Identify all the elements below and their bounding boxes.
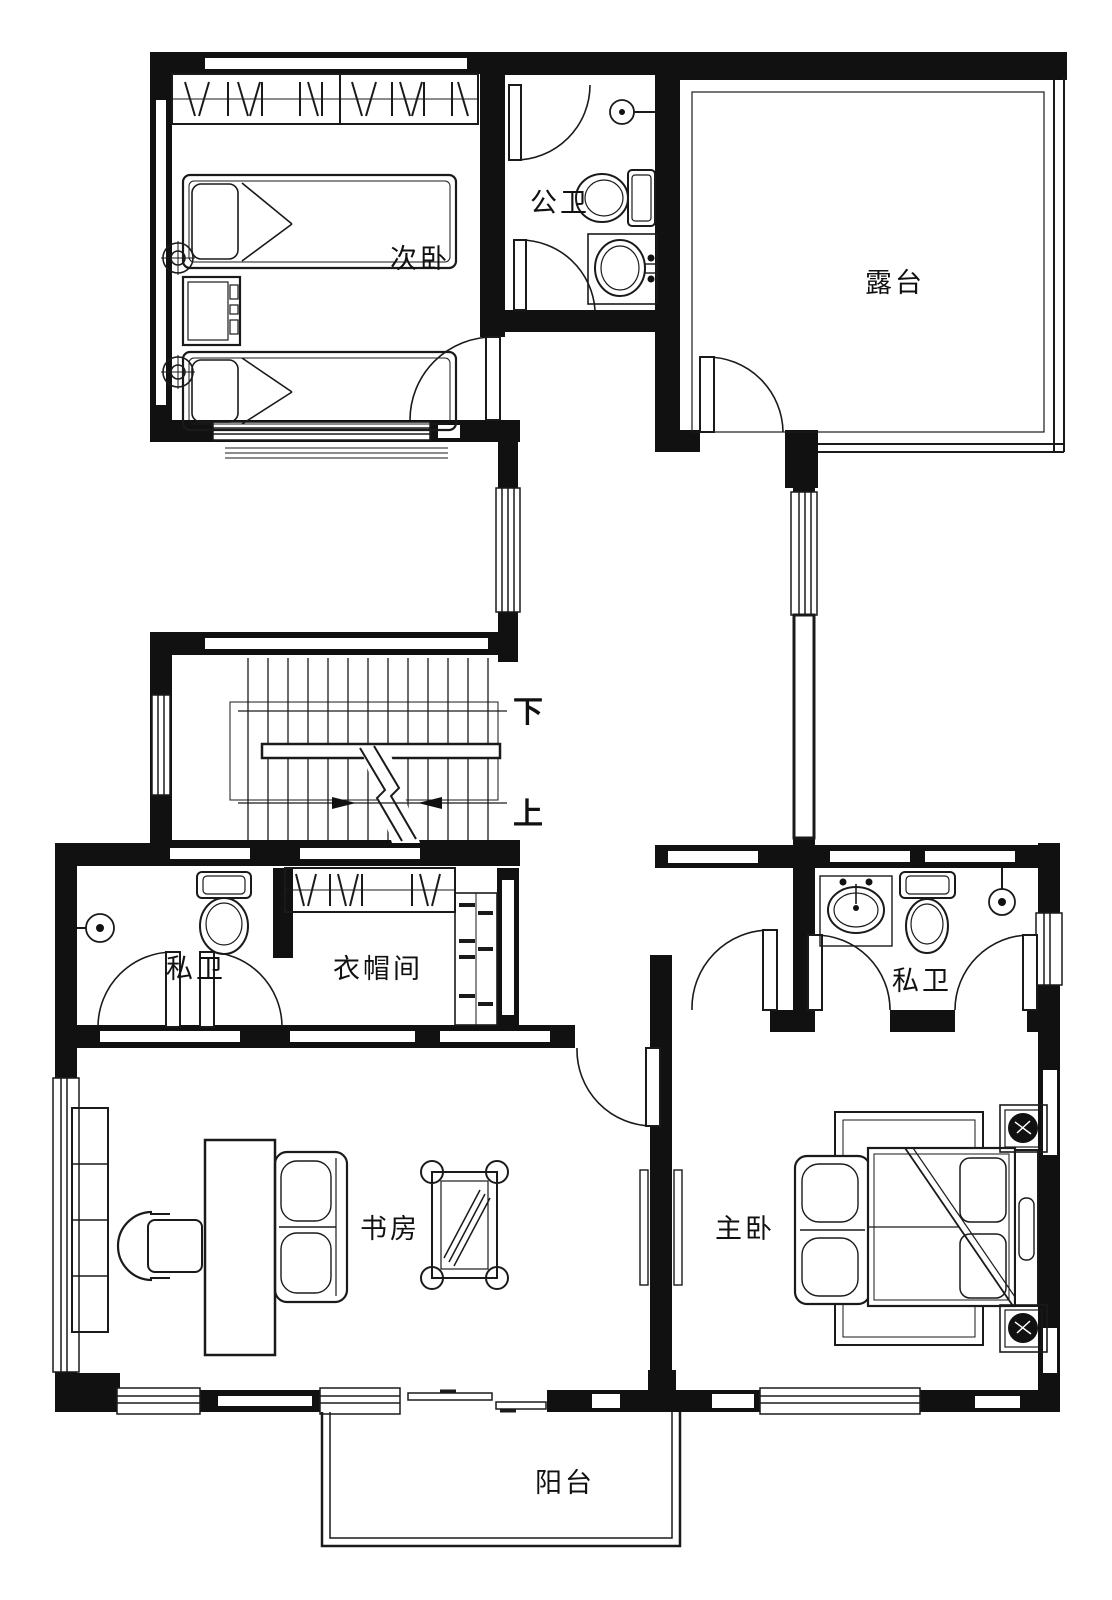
stair-arrow-left: [418, 797, 442, 809]
master-bedroom-furniture: [640, 1105, 1047, 1352]
stair-arrow-right: [332, 797, 356, 809]
room-label-balcony: 阳台: [535, 1468, 595, 1499]
door-study: [577, 1048, 660, 1126]
cloakroom-fittings: [285, 868, 497, 1025]
room-label-terrace: 露台: [865, 268, 925, 299]
door-private-bath-right-2: [955, 935, 1037, 1010]
door-public-bath-top: [509, 85, 590, 160]
stair-label-up: 上: [513, 797, 543, 832]
terrace-parapet: [692, 78, 1064, 452]
private-bathroom-left-fixtures: [77, 872, 251, 954]
staircase: [230, 658, 507, 843]
room-label-private-bathroom-right: 私卫: [892, 966, 952, 997]
divider-panel-left: [640, 1170, 648, 1285]
floor-plan: 次卧 公卫 露台 下 上 私卫 衣帽间 私卫 书房 主卧 阳台: [0, 0, 1112, 1600]
room-label-cloakroom: 衣帽间: [333, 954, 423, 985]
nightstand: [183, 277, 240, 345]
table: [421, 1161, 508, 1289]
headboard-bench: [1015, 1150, 1038, 1306]
study-furniture: [72, 1108, 508, 1355]
shower-head-icon: [77, 914, 114, 942]
private-bathroom-right-fixtures: [820, 868, 1015, 953]
room-label-public-bathroom: 公卫: [530, 188, 590, 219]
shower-head-icon: [989, 868, 1015, 915]
sofa: [275, 1152, 347, 1302]
shower-head-icon: [610, 100, 657, 124]
shelves: [455, 893, 497, 1025]
door-master-bedroom: [692, 930, 777, 1010]
door-terrace: [700, 357, 783, 432]
door-public-bath-bottom: [514, 240, 595, 310]
toilet-icon: [197, 872, 251, 954]
room-label-secondary-bedroom: 次卧: [390, 244, 450, 275]
loveseat: [795, 1156, 870, 1304]
room-label-study: 书房: [360, 1214, 420, 1245]
sliding-door-pier: [547, 1390, 585, 1412]
wardrobe: [285, 868, 455, 912]
wardrobe: [172, 74, 478, 124]
desk: [205, 1140, 275, 1355]
office-chair: [118, 1212, 202, 1280]
room-label-private-bathroom-left: 私卫: [166, 954, 226, 985]
divider-panel-right: [674, 1170, 682, 1285]
balcony-parapet: [322, 1412, 680, 1546]
sink-icon: [820, 876, 892, 946]
sink-icon: [588, 234, 657, 304]
room-label-master-bedroom: 主卧: [715, 1214, 775, 1245]
double-bed: [868, 1148, 1015, 1306]
toilet-icon: [900, 872, 955, 953]
stair-label-down: 下: [513, 695, 543, 730]
